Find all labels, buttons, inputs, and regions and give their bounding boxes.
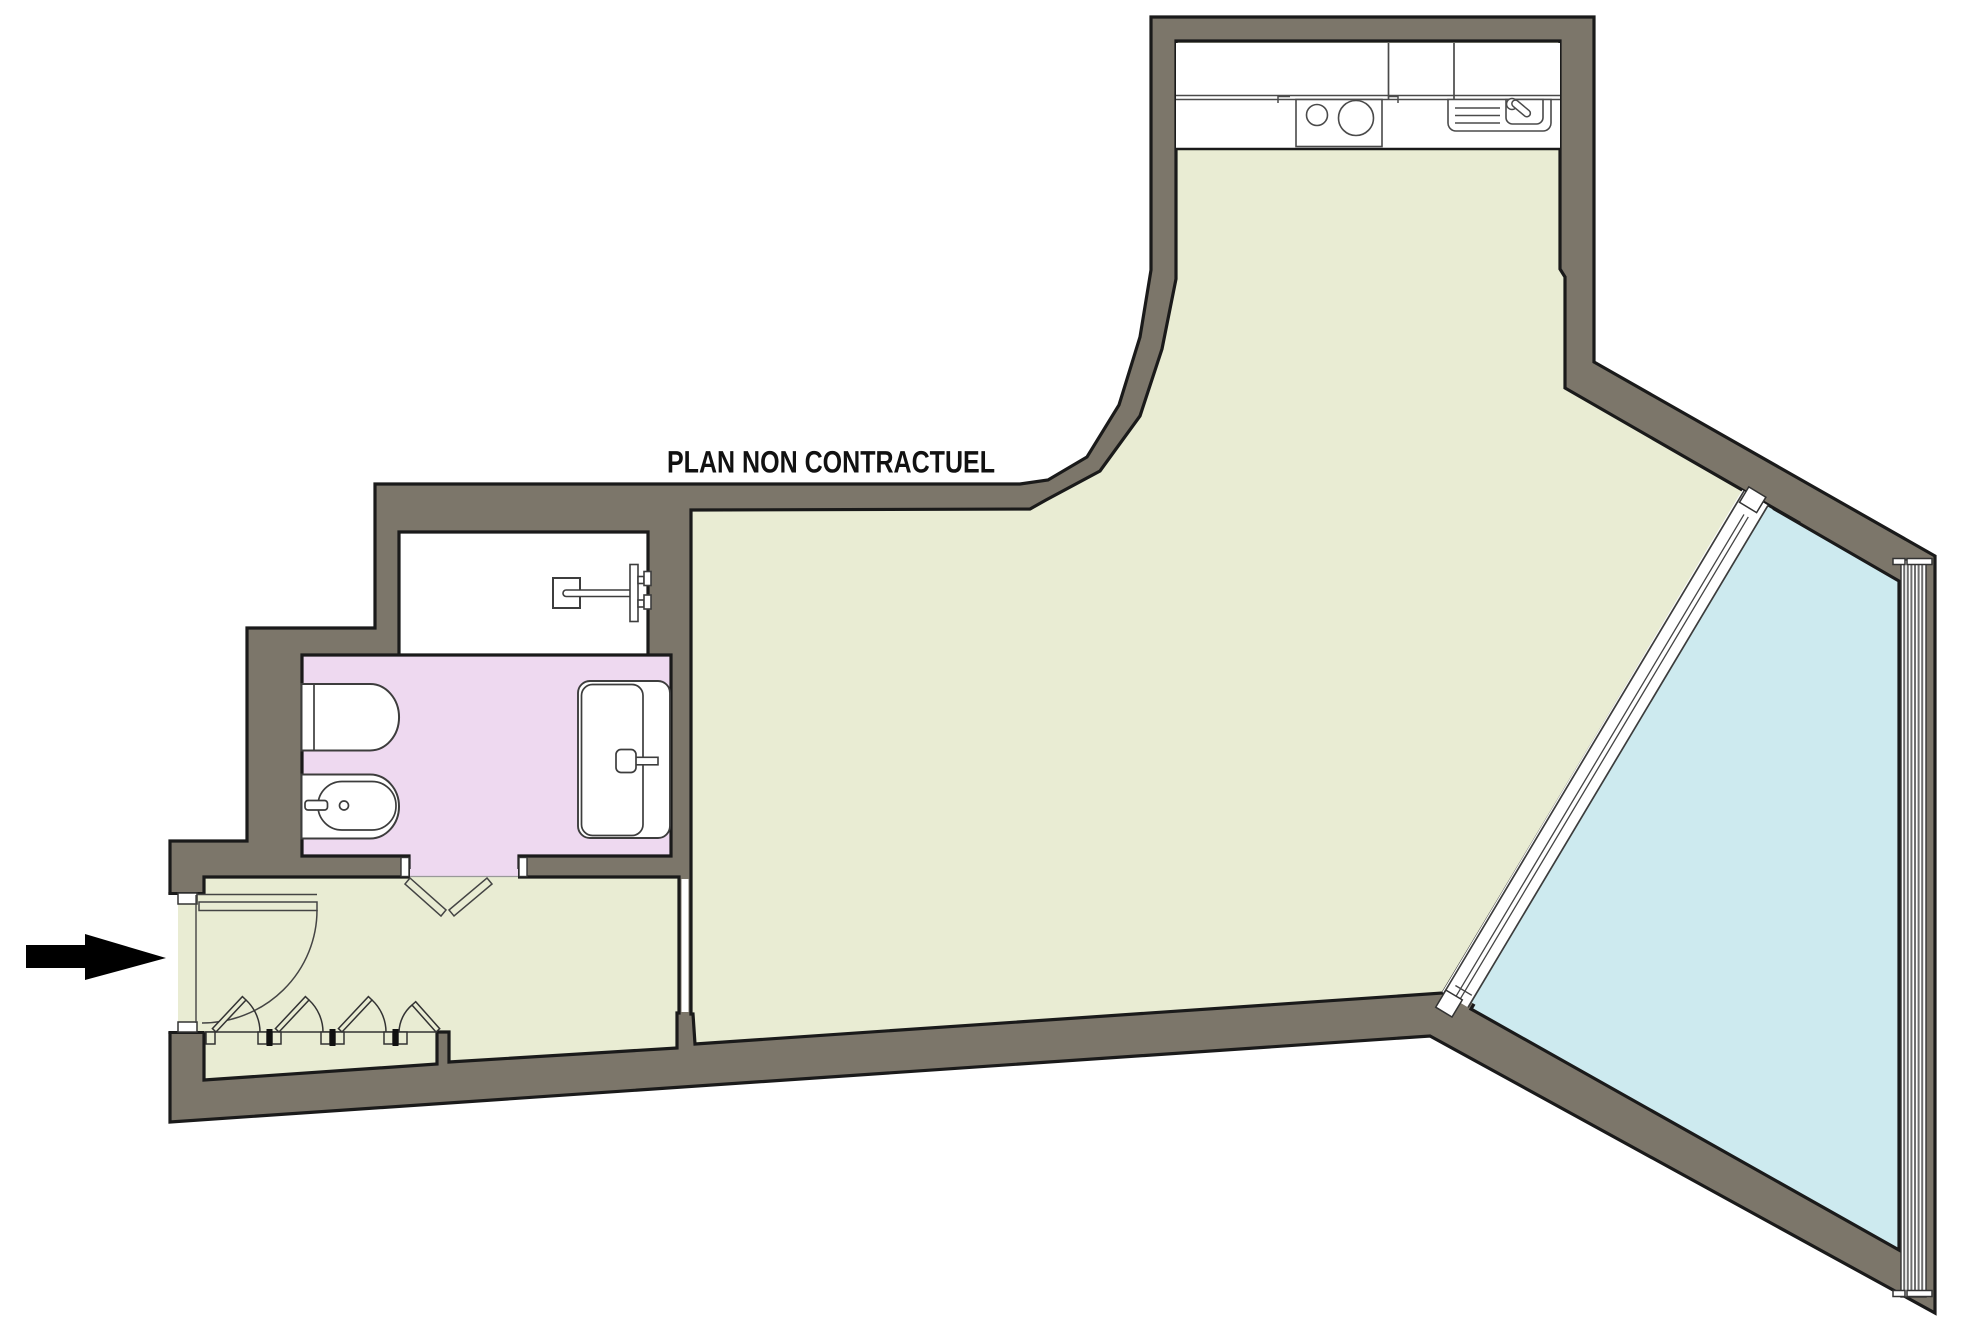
- svg-text:PLAN NON CONTRACTUEL: PLAN NON CONTRACTUEL: [667, 445, 995, 480]
